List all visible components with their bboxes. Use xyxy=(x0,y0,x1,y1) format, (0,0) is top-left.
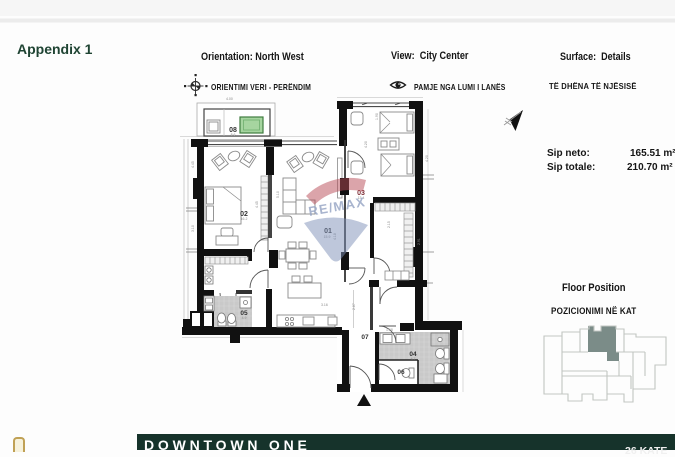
svg-text:4.45: 4.45 xyxy=(191,161,195,168)
svg-text:1.98: 1.98 xyxy=(386,328,393,332)
svg-text:5.10: 5.10 xyxy=(276,191,280,198)
svg-text:4.9: 4.9 xyxy=(242,316,247,320)
svg-text:2.15: 2.15 xyxy=(387,221,391,228)
svg-text:2.91: 2.91 xyxy=(417,238,421,245)
svg-text:06: 06 xyxy=(397,369,405,376)
svg-text:16.2: 16.2 xyxy=(241,217,248,221)
svg-text:4.45: 4.45 xyxy=(255,201,259,208)
svg-text:4.20: 4.20 xyxy=(364,141,368,148)
svg-text:3.10: 3.10 xyxy=(191,225,195,232)
svg-text:1.90: 1.90 xyxy=(375,113,379,120)
svg-text:07: 07 xyxy=(361,334,369,341)
svg-text:4.7: 4.7 xyxy=(411,357,416,361)
svg-text:4.20: 4.20 xyxy=(425,155,429,162)
svg-text:8.6: 8.6 xyxy=(231,133,236,137)
svg-text:2.87: 2.87 xyxy=(352,303,356,310)
svg-text:3.16: 3.16 xyxy=(321,303,328,307)
svg-text:4.00: 4.00 xyxy=(226,97,233,101)
